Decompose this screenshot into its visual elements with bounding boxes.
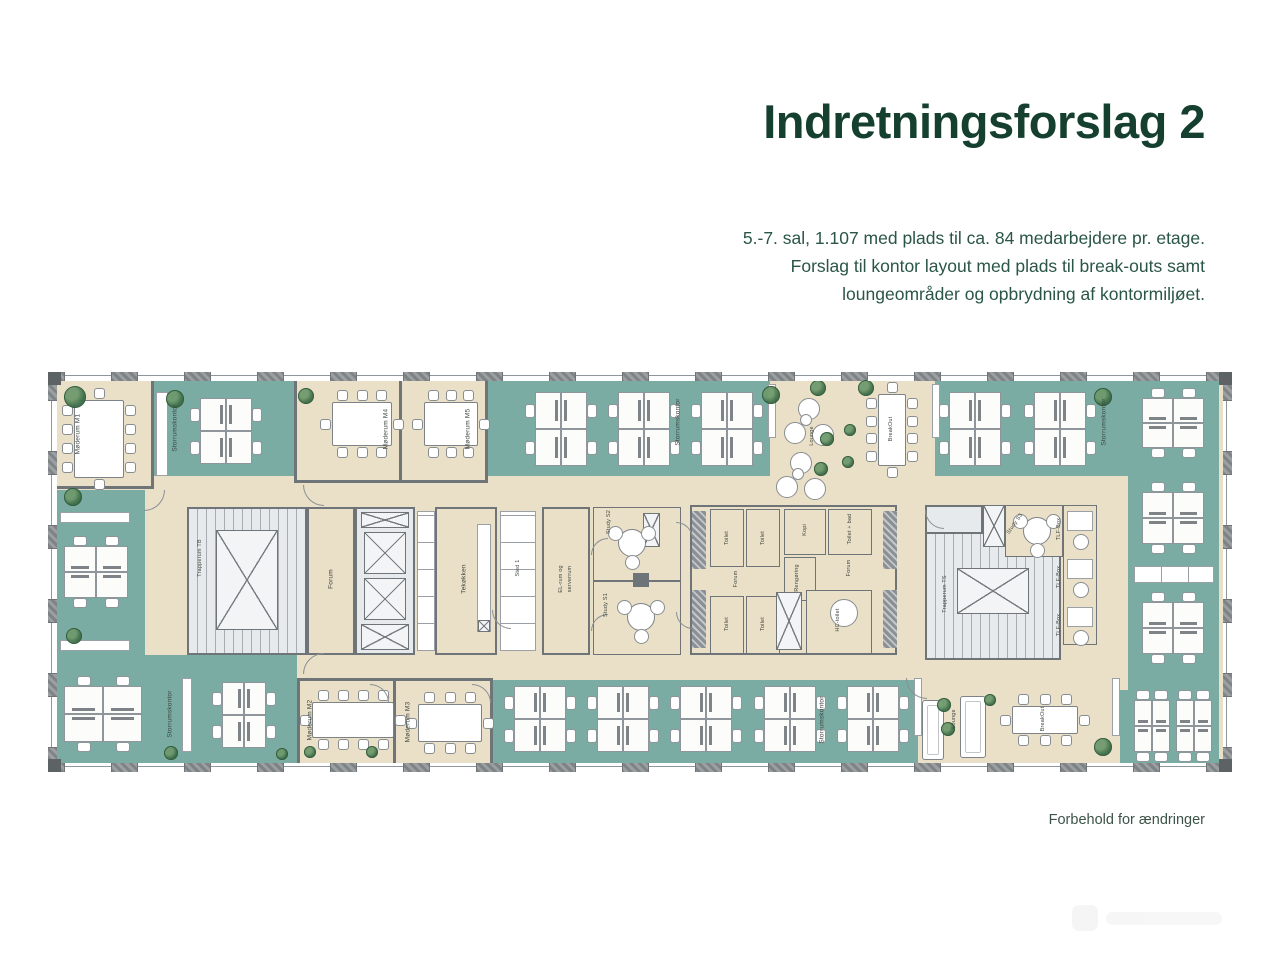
desk [1176,726,1194,752]
chair [446,447,457,458]
chair [318,690,329,701]
chair [338,739,349,750]
window [794,763,842,772]
desk [226,431,252,464]
label-moderum-m4: Møderum M4 [383,409,390,450]
window [429,763,477,772]
chair [412,419,423,430]
chair [378,739,389,750]
study-chair [650,600,665,615]
desk [1134,726,1152,752]
desk [949,392,975,429]
desk-cluster [1142,602,1204,654]
window [48,400,57,452]
corner-pillar [48,759,61,772]
window [575,763,623,772]
label-lounge: Lounge [809,426,815,446]
locker-strip [692,511,706,569]
label-rengoring: Rengøring [794,564,800,591]
chair [1061,735,1072,746]
plant [1094,738,1112,756]
desk [64,546,96,572]
window [137,372,185,381]
desk [764,719,790,752]
label-hc-toilet: HC-toilet [835,608,841,631]
locker-strip [883,511,897,569]
desk [514,686,540,719]
desk [618,392,644,429]
label-trapperum-ts: Trapperum TS [942,575,948,613]
desk [64,572,96,598]
window [356,372,404,381]
watermark-logo [1072,903,1222,933]
label-tlf-box: TLF-Box [1056,566,1062,589]
desk [1194,700,1212,726]
label-tlf-box: TLF-Box [1056,614,1062,637]
chair [62,424,73,435]
desk [949,429,975,466]
meeting-table [418,704,482,742]
window [137,763,185,772]
label-kopi: Kopi [802,524,808,536]
desk [790,719,816,752]
chair [445,743,456,754]
desk [222,715,244,748]
server-room [542,507,590,655]
plant [820,432,834,446]
cabinet-strip [182,678,192,752]
desk [618,429,644,466]
chair [125,462,136,473]
label-storrumskontor: Storrumskontor [675,398,682,445]
meeting-table [312,702,394,738]
window [48,548,57,600]
desk [1194,726,1212,752]
chair [479,419,490,430]
partition-wall [399,381,402,482]
label-breakout: BreakOut [1040,707,1046,732]
desk-cluster [597,686,649,752]
stair-void [216,530,278,630]
desk-cluster [701,392,753,466]
chair [337,447,348,458]
chair [483,718,494,729]
chair [125,443,136,454]
partition-wall [297,678,493,681]
desk-cluster [1034,392,1086,466]
phone-box-desk [1067,559,1093,579]
chair [94,388,105,399]
chair [1018,735,1029,746]
chair [1000,715,1011,726]
study-chair [641,526,656,541]
project-table [1134,566,1214,583]
desk [597,719,623,752]
plant [64,488,82,506]
label-tekokken: Tekøkken [461,564,468,593]
desk [244,715,266,748]
window [1223,400,1232,452]
desk [847,686,873,719]
desk-cluster [1176,700,1212,752]
window [429,372,477,381]
chair [94,479,105,490]
label-toilet: Toilet [724,617,730,631]
chair [125,405,136,416]
desk [1142,492,1173,518]
subtitle-line: loungeområder og opbrydning af kontormil… [743,280,1205,308]
window [1223,548,1232,600]
chair [338,690,349,701]
chair [907,433,918,444]
desk [200,398,226,431]
partition-wall [294,480,488,483]
chair [907,416,918,427]
window [64,763,112,772]
watermark-wordmark [1106,912,1222,925]
study-chair [1030,543,1045,558]
desk-cluster [764,686,816,752]
locker-strip [883,590,897,648]
elevator-shaft [364,578,406,620]
chair [424,743,435,754]
meeting-table [74,400,124,478]
desk [644,429,670,466]
plant [304,746,316,758]
desk [873,686,899,719]
label-moderum-m1: Møderum M1 [75,414,82,455]
chair [1079,715,1090,726]
locker-strip [692,590,706,648]
label-trapperum-tb: Trapperum TB [197,539,203,577]
plant [810,380,826,396]
desk-cluster [1134,700,1170,752]
desk [623,719,649,752]
desk [1142,628,1173,654]
label-forum: Forum [328,569,335,589]
fixture-marker [478,620,490,632]
bench-column [500,511,536,651]
desk-cluster [222,682,266,748]
chair [357,447,368,458]
desk [222,682,244,715]
desk [847,719,873,752]
window [502,372,550,381]
desk [790,686,816,719]
phone-box-desk [1067,607,1093,627]
window [1159,763,1207,772]
desk [514,719,540,752]
chair [424,692,435,703]
desk [103,714,142,742]
desk [623,686,649,719]
plant [858,380,874,396]
chair [318,739,329,750]
label-tlf-box: TLF-Box [1056,518,1062,541]
desk [1173,492,1204,518]
chair [125,424,136,435]
phone-box-desk [1067,511,1093,531]
sofa [960,696,986,758]
window [721,372,769,381]
desk-cluster [64,546,128,598]
desk [727,429,753,466]
desk [873,719,899,752]
subtitle-line: 5.-7. sal, 1.107 med plads til ca. 84 me… [743,224,1205,252]
label-forum: Forum [846,560,852,577]
chair [428,447,439,458]
window [1013,372,1061,381]
plant [984,694,996,706]
lounge-side-table [792,468,804,480]
elevator-shaft [364,532,406,574]
desk-cluster [847,686,899,752]
kitchen-island [477,524,491,632]
plant [937,698,951,712]
desk [975,429,1001,466]
desk [680,719,706,752]
desk [764,686,790,719]
chair [1018,694,1029,705]
plant [64,386,86,408]
desk [706,686,732,719]
corner-pillar [48,372,61,385]
chair [887,382,898,393]
desk-cluster [949,392,1001,466]
window [648,372,696,381]
chair [376,390,387,401]
plant [842,456,854,468]
chair [393,419,404,430]
window [1223,696,1232,748]
desk [727,392,753,429]
desk [103,686,142,714]
desk-cluster [200,398,252,464]
desk [226,398,252,431]
desk-cluster [1142,398,1204,448]
desk [96,546,128,572]
subtitle-line: Forslag til kontor layout med plads til … [743,252,1205,280]
desk [1060,429,1086,466]
desk [200,431,226,464]
desk [1173,602,1204,628]
desk-cluster [680,686,732,752]
desk [535,429,561,466]
label-storrumskontor: Storrumskontor [819,696,826,743]
plant [276,748,288,760]
desk [1142,398,1173,423]
plant [164,746,178,760]
chair [465,743,476,754]
desk [975,392,1001,429]
stair-void [957,568,1029,614]
chair [62,443,73,454]
window [940,763,988,772]
label-storrumskontor: Storrumskontor [167,690,174,737]
window [48,696,57,748]
desk [1034,392,1060,429]
chair [358,690,369,701]
chair [866,398,877,409]
window [575,372,623,381]
label-moderum-m5: Møderum M5 [465,409,472,450]
window [1086,372,1134,381]
partition-wall [633,573,649,587]
desk [1142,423,1173,448]
chair [1061,694,1072,705]
phone-box-chair [1073,534,1089,550]
desk [644,392,670,429]
desk [1134,700,1152,726]
window [48,622,57,674]
partition-wall [294,381,297,482]
window [794,372,842,381]
label-toilet: Toilet [724,531,730,545]
chair [320,419,331,430]
elevator-shaft [983,505,1005,547]
plant [844,424,856,436]
chair [357,390,368,401]
desk [64,686,103,714]
partition-wall [151,381,154,488]
partition-wall [485,381,488,482]
window [1223,474,1232,526]
desk [1176,700,1194,726]
desk-cluster [1142,492,1204,544]
cabinet-strip [60,512,130,523]
label-study-s2: Study S2 [606,510,612,534]
corner-pillar [1219,759,1232,772]
desk [561,392,587,429]
chair [907,398,918,409]
desk [1173,628,1204,654]
desk [561,429,587,466]
desk-cluster [64,686,142,742]
closet-column [417,511,435,651]
window [867,763,915,772]
window [721,763,769,772]
lounge-side-table [800,414,812,426]
watermark-mark [1072,905,1098,931]
label-forum: Forum [733,571,739,588]
phone-box-chair [1073,630,1089,646]
window [502,763,550,772]
chair [1040,694,1051,705]
desk [1173,423,1204,448]
desk [701,392,727,429]
study-chair [634,629,649,644]
label-toilet: Toilet [760,617,766,631]
desk [1173,518,1204,544]
corner-pillar [1219,372,1232,385]
window [1013,763,1061,772]
cabinet-strip [156,392,168,476]
chair [445,692,456,703]
chair [887,467,898,478]
chair [428,390,439,401]
window [648,763,696,772]
desk [535,392,561,429]
label-lounge: Lounge [951,709,957,729]
chair [446,390,457,401]
chair [337,390,348,401]
label-breakout: BreakOut [888,417,894,442]
desk [1142,518,1173,544]
label-storrumskontor: Storrumskontor [1101,398,1108,445]
chair [1040,735,1051,746]
desk [706,719,732,752]
plant [66,628,82,644]
elevator-shaft [776,592,802,650]
desk [1060,392,1086,429]
desk [244,682,266,715]
window [283,763,331,772]
label-storrumskontor: Storrumskontor [172,404,179,451]
floor-plan: Møderum M1 Storrumskontor Møderum M4 Mød… [48,372,1232,772]
window [940,372,988,381]
label-toilet-bad: Toilet + bad [847,514,853,545]
chair [866,433,877,444]
desk-cluster [618,392,670,466]
window [1223,622,1232,674]
elevator-shaft [361,512,409,528]
cabinet-strip [1112,678,1120,736]
plant [762,386,780,404]
disclaimer-text: Forbehold for ændringer [1049,812,1205,828]
plant [366,746,378,758]
chair [866,416,877,427]
label-moderum-m3: Møderum M3 [405,702,412,743]
desk-cluster [514,686,566,752]
desk [64,714,103,742]
window [210,763,258,772]
desk [1173,398,1204,423]
phone-box-chair [1073,582,1089,598]
label-sted-1: Sted 1 [515,559,521,576]
desk [540,686,566,719]
desk [1152,726,1170,752]
page-title: Indretningsforslag 2 [763,94,1205,149]
window [356,763,404,772]
page-subtitle: 5.-7. sal, 1.107 med plads til ca. 84 me… [743,224,1205,308]
window [64,372,112,381]
plant [298,388,314,404]
desk-cluster [535,392,587,466]
window [1086,763,1134,772]
desk [1152,700,1170,726]
label-el-rum-line1: EL-rum og [558,565,564,592]
label-toilet: Toilet [760,531,766,545]
chair [866,451,877,462]
study-chair [617,600,632,615]
desk [96,572,128,598]
window [867,372,915,381]
desk [1034,429,1060,466]
desk [1142,602,1173,628]
window [1159,372,1207,381]
chair [62,462,73,473]
study-chair [625,555,640,570]
window [210,372,258,381]
desk [540,719,566,752]
desk [701,429,727,466]
elevator-shaft [361,624,409,650]
window [283,372,331,381]
lounge-chair [804,478,826,500]
label-moderum-m2: Møderum M2 [307,700,314,741]
chair [463,390,474,401]
label-study-s1: Study S1 [603,593,609,617]
